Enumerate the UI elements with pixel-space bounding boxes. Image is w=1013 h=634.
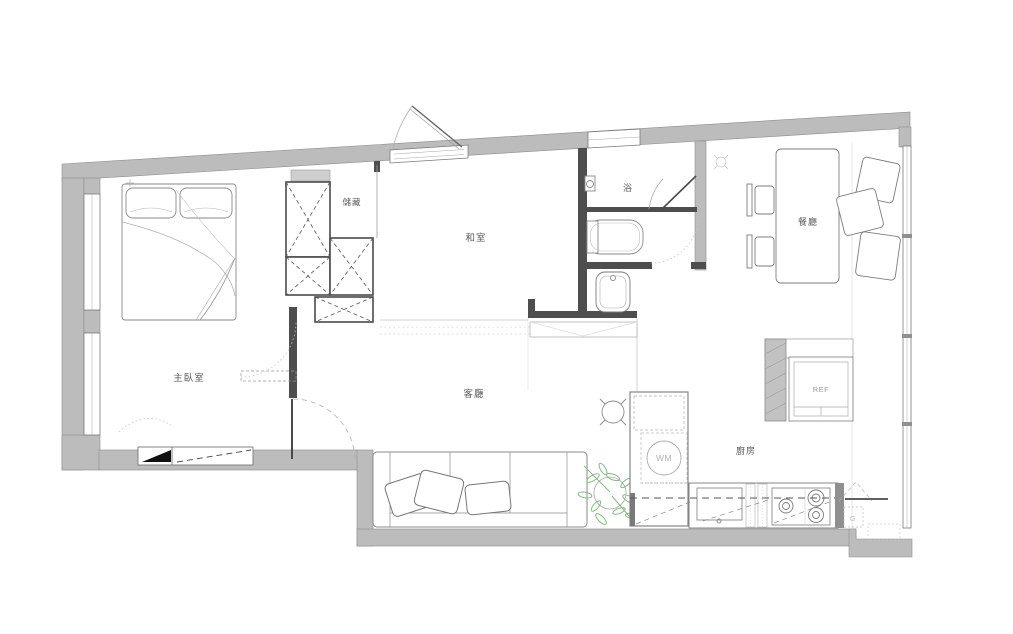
room-label-master-bedroom: 主臥室 — [173, 372, 205, 384]
wall-west-window-pier — [84, 310, 100, 333]
bathroom — [585, 176, 698, 263]
bath-lower-door-arc — [651, 216, 698, 263]
washbasin — [596, 272, 630, 312]
wall-bath-south — [578, 262, 652, 269]
wall-bedroom-east — [289, 307, 297, 393]
refrigerator-area — [765, 339, 853, 421]
washbasin-faucet — [611, 276, 616, 281]
sofa — [373, 452, 587, 527]
bath-door-arc — [649, 179, 663, 209]
wall-west — [62, 178, 84, 470]
room-label-dining: 餐廳 — [798, 216, 818, 227]
east-window-tick-3 — [902, 422, 912, 426]
floor-cushion-3 — [855, 231, 901, 280]
room-label-storage: 儲藏 — [342, 197, 361, 207]
bedroom-inner-door-arc — [241, 322, 296, 377]
wall-kitchen-south-step — [849, 529, 912, 557]
dining-set — [714, 149, 901, 283]
wall-bath-south-jamb — [691, 262, 706, 269]
cabinet-door-arc — [119, 418, 172, 432]
chair-2-back — [747, 235, 752, 268]
tatami-bench — [530, 322, 637, 337]
ceiling-light-symbol — [714, 155, 728, 169]
plant-pot — [594, 477, 626, 509]
wardrobe-storage — [286, 165, 377, 322]
floor-plan-page: 主臥室 儲藏 和室 浴 餐廳 客廳 廚房 REF WM G — [0, 0, 1013, 634]
east-window-tick-2 — [902, 334, 912, 338]
cabinet-body — [138, 447, 253, 465]
room-label-bath: 浴 — [623, 183, 633, 193]
chair-1-seat — [755, 186, 774, 214]
east-window-tick-1 — [902, 234, 912, 238]
round-stool — [600, 399, 626, 425]
sofa-pillow-3 — [465, 481, 512, 515]
pillow-left — [126, 188, 176, 218]
gas-label: G — [850, 514, 856, 523]
bedroom-cabinet — [119, 418, 253, 465]
pillow-right — [180, 188, 232, 218]
washing-machine-label: WM — [656, 453, 672, 463]
wall-west-top-pier — [84, 178, 100, 195]
chair-1-back — [747, 184, 752, 216]
wall-bath-west — [578, 148, 587, 318]
wall-northeast-corner — [899, 127, 911, 147]
bed — [122, 179, 236, 320]
outdoor-unit-dashed — [868, 524, 900, 540]
bathtub-deck — [587, 221, 598, 253]
bath-door-leaf — [662, 176, 696, 209]
stool-top — [602, 401, 624, 423]
wall-living-south — [357, 529, 856, 546]
wall-bath-divider — [578, 207, 697, 212]
bench-body — [530, 322, 637, 337]
floor-plan-canvas: 主臥室 儲藏 和室 浴 餐廳 客廳 廚房 REF WM G — [0, 0, 1013, 634]
room-label-kitchen: 廚房 — [736, 445, 756, 456]
wall-hall-stub — [528, 299, 535, 318]
wall-southwest-corner — [62, 435, 100, 470]
refrigerator-label: REF — [813, 385, 830, 394]
wall-bath-east — [695, 141, 706, 270]
shower-fixture-knob — [587, 181, 594, 188]
dining-table — [776, 149, 839, 283]
room-label-living: 客廳 — [463, 388, 484, 400]
bedroom-doors — [241, 322, 355, 461]
bedroom-door-jamb — [289, 393, 297, 398]
room-label-tatami: 和室 — [465, 232, 486, 244]
counter-end-pier — [835, 483, 844, 528]
chair-2-seat — [755, 237, 774, 266]
storage-shelf — [291, 170, 330, 181]
